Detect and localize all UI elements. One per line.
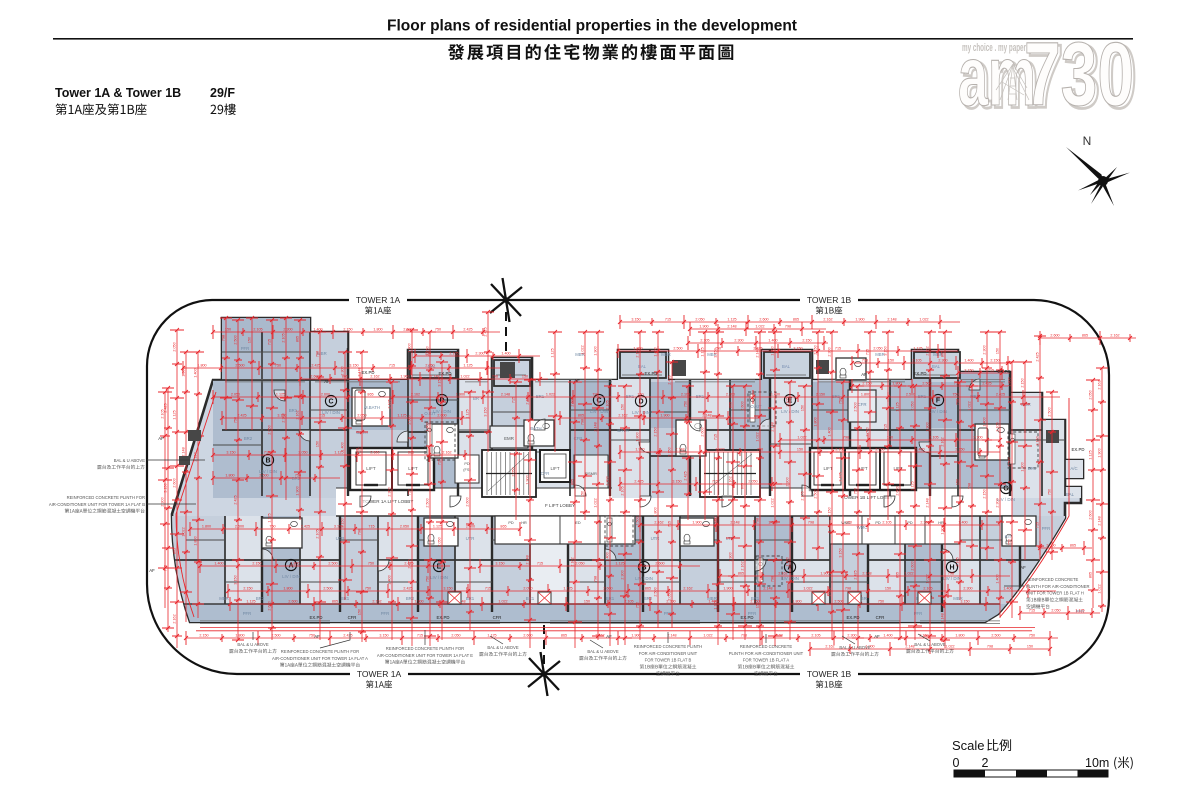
svg-text:2.148: 2.148 — [526, 555, 530, 564]
svg-text:BR1: BR1 — [918, 394, 927, 399]
svg-text:2.050: 2.050 — [866, 427, 870, 436]
svg-text:798: 798 — [987, 645, 993, 649]
svg-text:750: 750 — [954, 382, 960, 386]
svg-text:1.400: 1.400 — [313, 328, 322, 332]
svg-text:2.425: 2.425 — [982, 382, 991, 386]
svg-text:2.105: 2.105 — [923, 587, 932, 591]
svg-text:750: 750 — [408, 489, 412, 495]
svg-text:2.500: 2.500 — [834, 600, 843, 604]
svg-text:3.150: 3.150 — [672, 480, 681, 484]
svg-text:2.500: 2.500 — [991, 634, 1000, 638]
svg-text:1.800: 1.800 — [955, 634, 964, 638]
svg-text:AF: AF — [874, 634, 880, 639]
svg-text:2.600: 2.600 — [701, 427, 705, 436]
svg-text:2.148: 2.148 — [501, 393, 510, 397]
svg-text:1.125: 1.125 — [173, 410, 177, 419]
svg-text:2.150: 2.150 — [199, 634, 208, 638]
svg-text:1.400: 1.400 — [771, 393, 780, 397]
svg-text:1.800: 1.800 — [1021, 462, 1025, 471]
svg-text:2.050: 2.050 — [523, 587, 532, 591]
svg-text:730: 730 — [1024, 25, 1134, 125]
svg-text:1.800: 1.800 — [197, 364, 206, 368]
svg-text:AIR-CONDITIONER UNIT FOR TOWER: AIR-CONDITIONER UNIT FOR TOWER 1A FLAT A — [272, 656, 368, 661]
svg-text:2.300: 2.300 — [341, 366, 345, 375]
svg-text:PD: PD — [907, 521, 913, 525]
svg-text:2.162: 2.162 — [741, 561, 745, 570]
svg-text:798: 798 — [757, 448, 763, 452]
svg-text:AF: AF — [314, 634, 320, 639]
svg-text:1.400: 1.400 — [1003, 587, 1012, 591]
svg-text:715: 715 — [712, 480, 718, 484]
svg-text:EX.PD: EX.PD — [437, 615, 450, 620]
svg-text:2.150: 2.150 — [426, 346, 430, 355]
svg-text:798: 798 — [956, 399, 960, 405]
svg-text:3.150: 3.150 — [438, 377, 442, 386]
svg-text:2.300: 2.300 — [938, 359, 947, 363]
svg-text:REINFORCED CONCRETE PLINTH FOR: REINFORCED CONCRETE PLINTH FOR — [281, 649, 359, 654]
svg-text:150: 150 — [637, 393, 643, 397]
svg-text:2.050: 2.050 — [668, 591, 672, 600]
svg-text:1.900: 1.900 — [526, 475, 530, 484]
svg-text:2.600: 2.600 — [321, 393, 330, 397]
svg-text:715: 715 — [668, 521, 672, 527]
svg-text:2.425: 2.425 — [996, 393, 1005, 397]
svg-text:715: 715 — [988, 369, 994, 373]
svg-text:150: 150 — [887, 436, 893, 440]
svg-text:BR1: BR1 — [696, 394, 705, 399]
svg-text:2.150: 2.150 — [828, 507, 832, 516]
svg-text:1.900: 1.900 — [594, 346, 598, 355]
svg-text:2.425: 2.425 — [1036, 352, 1040, 361]
svg-text:1.800: 1.800 — [1008, 377, 1012, 386]
svg-text:865: 865 — [500, 525, 506, 529]
svg-text:865: 865 — [793, 318, 799, 322]
svg-text:1.125: 1.125 — [246, 600, 255, 604]
svg-text:2.148: 2.148 — [887, 318, 896, 322]
svg-text:1.125: 1.125 — [911, 481, 915, 490]
svg-text:150: 150 — [358, 609, 362, 615]
svg-text:3.150: 3.150 — [884, 346, 888, 355]
svg-text:1.900: 1.900 — [635, 448, 644, 452]
svg-text:715: 715 — [714, 434, 718, 440]
svg-text:PLINTH FOR AIR-CONDITIONER UNI: PLINTH FOR AIR-CONDITIONER UNIT — [729, 651, 804, 656]
svg-text:1.900: 1.900 — [855, 318, 864, 322]
svg-text:2.150: 2.150 — [816, 393, 825, 397]
svg-text:3.150: 3.150 — [443, 587, 452, 591]
svg-text:2.600: 2.600 — [1089, 510, 1093, 519]
svg-text:LIV / DIN: LIV / DIN — [929, 409, 947, 414]
svg-text:1.125: 1.125 — [397, 414, 406, 418]
svg-text:EX.PD: EX.PD — [439, 371, 452, 376]
svg-text:2.150: 2.150 — [955, 448, 964, 452]
svg-text:2.148: 2.148 — [1098, 516, 1102, 525]
svg-text:798: 798 — [316, 351, 320, 357]
svg-text:1.800: 1.800 — [792, 600, 801, 604]
svg-text:2.148: 2.148 — [756, 348, 760, 357]
svg-text:798: 798 — [808, 521, 814, 525]
svg-text:1.022: 1.022 — [594, 498, 598, 507]
svg-text:RSMR: RSMR — [585, 471, 597, 476]
svg-text:1.400: 1.400 — [214, 562, 223, 566]
svg-text:2.300: 2.300 — [847, 634, 856, 638]
svg-text:MBR: MBR — [661, 352, 671, 357]
svg-text:798: 798 — [845, 587, 851, 591]
svg-text:2.162: 2.162 — [595, 634, 604, 638]
svg-text:HR: HR — [521, 521, 527, 525]
svg-text:2.148: 2.148 — [771, 422, 775, 431]
svg-text:1.022: 1.022 — [904, 572, 913, 576]
svg-text:KIT: KIT — [1005, 534, 1012, 539]
svg-text:2.600: 2.600 — [310, 375, 319, 379]
svg-text:2.300: 2.300 — [875, 448, 884, 452]
svg-text:2.425: 2.425 — [343, 634, 352, 638]
svg-text:FOR AIR-CONDITIONER UNIT: FOR AIR-CONDITIONER UNIT — [639, 651, 698, 656]
svg-text:CFR: CFR — [348, 615, 357, 620]
svg-text:2.300: 2.300 — [388, 487, 392, 496]
svg-text:715: 715 — [389, 364, 395, 368]
svg-text:2.162: 2.162 — [1110, 334, 1119, 338]
svg-text:2.050: 2.050 — [298, 451, 307, 455]
svg-text:750: 750 — [426, 576, 430, 582]
svg-text:1.125: 1.125 — [701, 347, 705, 356]
svg-text:715: 715 — [319, 414, 325, 418]
svg-text:AF: AF — [606, 634, 612, 639]
svg-text:1.900: 1.900 — [400, 375, 409, 379]
svg-text:G: G — [1003, 486, 1009, 493]
svg-text:1.900: 1.900 — [296, 486, 300, 495]
svg-text:2.105: 2.105 — [316, 529, 320, 538]
svg-text:1.800: 1.800 — [408, 343, 412, 352]
svg-text:CFR: CFR — [541, 471, 550, 476]
svg-text:BAL & U ABOVE: BAL & U ABOVE — [914, 642, 945, 647]
svg-text:2.300: 2.300 — [920, 521, 929, 525]
svg-text:my choice . my paper: my choice . my paper — [962, 42, 1026, 54]
svg-text:2.425: 2.425 — [164, 403, 168, 412]
svg-text:150: 150 — [522, 375, 528, 379]
svg-text:2.150: 2.150 — [654, 427, 658, 436]
svg-text:150: 150 — [846, 521, 852, 525]
svg-text:LIV / DIN: LIV / DIN — [632, 410, 650, 415]
svg-text:2.105: 2.105 — [786, 397, 790, 406]
svg-text:AF: AF — [158, 436, 164, 441]
svg-text:798: 798 — [594, 576, 598, 582]
svg-text:1.022: 1.022 — [703, 634, 712, 638]
svg-text:BR1: BR1 — [1028, 466, 1037, 471]
svg-text:1.125: 1.125 — [276, 393, 285, 397]
svg-text:2.500: 2.500 — [259, 474, 268, 478]
svg-text:F: F — [936, 398, 941, 405]
svg-text:865: 865 — [741, 483, 745, 489]
svg-text:2.148: 2.148 — [594, 422, 598, 431]
svg-text:2.600: 2.600 — [1050, 334, 1059, 338]
svg-text:798: 798 — [785, 325, 791, 329]
svg-text:1.022: 1.022 — [498, 600, 507, 604]
svg-text:1.800: 1.800 — [636, 432, 640, 441]
svg-text:2.500: 2.500 — [235, 525, 244, 529]
svg-text:2.148: 2.148 — [727, 325, 736, 329]
svg-text:150: 150 — [885, 587, 891, 591]
svg-text:2.105: 2.105 — [700, 339, 709, 343]
svg-text:865: 865 — [408, 451, 414, 455]
svg-text:3.150: 3.150 — [349, 364, 358, 368]
svg-text:150: 150 — [777, 634, 783, 638]
svg-text:2.050: 2.050 — [873, 347, 882, 351]
svg-text:BR1: BR1 — [626, 394, 635, 399]
svg-text:2.105: 2.105 — [801, 491, 805, 500]
svg-text:1.800: 1.800 — [202, 525, 211, 529]
svg-text:750: 750 — [1029, 634, 1035, 638]
svg-text:715: 715 — [368, 525, 374, 529]
svg-text:1.400: 1.400 — [964, 359, 973, 363]
svg-text:1.022: 1.022 — [182, 527, 186, 536]
svg-text:1.125: 1.125 — [615, 562, 624, 566]
svg-text:Floor plans of residential pro: Floor plans of residential properties in… — [387, 18, 797, 35]
svg-text:865: 865 — [896, 572, 900, 578]
svg-text:2.105: 2.105 — [929, 436, 938, 440]
svg-text:865: 865 — [578, 414, 584, 418]
svg-text:2.500: 2.500 — [854, 402, 858, 411]
svg-text:750: 750 — [234, 417, 238, 423]
svg-text:EX.PD: EX.PD — [645, 371, 658, 376]
svg-text:865: 865 — [645, 587, 651, 591]
svg-text:2.050: 2.050 — [173, 342, 177, 351]
svg-text:2.425: 2.425 — [634, 480, 643, 484]
svg-text:BAL & U ABOVE: BAL & U ABOVE — [114, 458, 145, 463]
svg-text:2.050: 2.050 — [357, 414, 366, 418]
svg-text:865: 865 — [729, 402, 733, 408]
svg-text:REINFORCED CONCRETE: REINFORCED CONCRETE — [1026, 577, 1079, 582]
svg-text:M.BATH: M.BATH — [364, 405, 380, 410]
svg-text:2.150: 2.150 — [636, 348, 640, 357]
svg-text:BAL & U ABOVE: BAL & U ABOVE — [487, 645, 518, 650]
svg-text:715: 715 — [485, 587, 491, 591]
svg-text:2.425: 2.425 — [484, 327, 488, 336]
svg-text:2.150: 2.150 — [814, 345, 818, 354]
svg-text:798: 798 — [492, 375, 498, 379]
svg-text:2.500: 2.500 — [234, 335, 238, 344]
svg-text:865: 865 — [571, 479, 575, 485]
svg-text:2.300: 2.300 — [963, 587, 972, 591]
svg-text:2.600: 2.600 — [466, 497, 470, 506]
svg-text:2.050: 2.050 — [425, 364, 434, 368]
svg-text:PFR: PFR — [1042, 526, 1051, 531]
svg-text:TOWER 1A: TOWER 1A — [356, 295, 401, 305]
svg-text:1.400: 1.400 — [194, 368, 198, 377]
svg-text:1.022: 1.022 — [460, 375, 469, 379]
svg-text:1.022: 1.022 — [1098, 584, 1102, 593]
svg-text:2.148: 2.148 — [730, 521, 739, 525]
svg-text:2.150: 2.150 — [802, 339, 811, 343]
svg-text:LIFT: LIFT — [366, 466, 376, 471]
svg-text:2.162: 2.162 — [618, 414, 627, 418]
svg-text:2.105: 2.105 — [835, 448, 844, 452]
svg-text:2.105: 2.105 — [882, 521, 891, 525]
svg-text:PD: PD — [875, 521, 881, 525]
svg-text:3.150: 3.150 — [631, 318, 640, 322]
svg-text:2.425: 2.425 — [301, 525, 310, 529]
svg-text:2.500: 2.500 — [1008, 457, 1012, 466]
svg-text:3.150: 3.150 — [714, 348, 718, 357]
svg-text:1.022: 1.022 — [546, 393, 555, 397]
svg-text:BAL: BAL — [932, 364, 941, 369]
svg-text:2.600: 2.600 — [1046, 544, 1055, 548]
svg-text:2.150: 2.150 — [343, 328, 352, 332]
svg-text:865: 865 — [738, 572, 744, 576]
svg-text:1.022: 1.022 — [919, 318, 928, 322]
svg-text:1.022: 1.022 — [768, 521, 777, 525]
svg-text:1.400: 1.400 — [883, 634, 892, 638]
svg-text:PD: PD — [508, 521, 514, 525]
svg-text:F LIFT LOBBY: F LIFT LOBBY — [545, 503, 575, 508]
svg-text:ED: ED — [575, 521, 581, 525]
svg-text:2.050: 2.050 — [1051, 609, 1060, 613]
svg-text:2.050: 2.050 — [400, 525, 409, 529]
svg-text:715: 715 — [665, 318, 671, 322]
svg-text:2.600: 2.600 — [571, 397, 575, 406]
svg-text:EX.PD: EX.PD — [741, 615, 754, 620]
svg-text:3.150: 3.150 — [1036, 436, 1040, 445]
svg-text:715: 715 — [417, 634, 423, 638]
svg-text:2.600: 2.600 — [437, 414, 446, 418]
svg-text:D: D — [638, 399, 643, 406]
svg-text:865: 865 — [1089, 572, 1093, 578]
svg-text:BATH: BATH — [530, 426, 541, 431]
svg-text:1.022: 1.022 — [358, 447, 362, 456]
svg-text:750: 750 — [878, 600, 884, 604]
svg-text:150: 150 — [797, 448, 803, 452]
svg-text:798: 798 — [741, 634, 747, 638]
svg-text:2.500: 2.500 — [426, 498, 430, 507]
svg-text:2.105: 2.105 — [282, 333, 286, 342]
svg-text:1.400: 1.400 — [786, 557, 790, 566]
svg-text:2.500: 2.500 — [271, 634, 280, 638]
svg-text:1.125: 1.125 — [1089, 450, 1093, 459]
svg-text:2.162: 2.162 — [296, 410, 300, 419]
svg-text:798: 798 — [843, 436, 849, 440]
svg-text:1.800: 1.800 — [235, 634, 244, 638]
svg-text:2.162: 2.162 — [926, 346, 930, 355]
svg-text:1.800: 1.800 — [373, 328, 382, 332]
svg-text:1.900: 1.900 — [729, 552, 733, 561]
svg-text:865: 865 — [173, 548, 177, 554]
svg-text:1.400: 1.400 — [654, 347, 658, 356]
svg-text:1.400: 1.400 — [341, 442, 345, 451]
svg-text:1.900: 1.900 — [1098, 448, 1102, 457]
svg-text:2.148: 2.148 — [941, 613, 945, 622]
svg-text:750: 750 — [1008, 539, 1012, 545]
svg-text:1.800: 1.800 — [861, 393, 870, 397]
svg-text:2.300: 2.300 — [734, 339, 743, 343]
svg-text:2.150: 2.150 — [983, 489, 987, 498]
svg-text:2.600: 2.600 — [288, 600, 297, 604]
svg-text:2.162: 2.162 — [173, 614, 177, 623]
svg-text:2.425: 2.425 — [408, 559, 412, 568]
svg-text:1.900: 1.900 — [631, 634, 640, 638]
svg-text:1.400: 1.400 — [958, 521, 967, 525]
svg-text:2.500: 2.500 — [1048, 407, 1052, 416]
svg-text:LIFT: LIFT — [823, 466, 832, 471]
svg-text:LIFT: LIFT — [550, 466, 559, 471]
svg-text:BR2: BR2 — [644, 596, 653, 601]
svg-text:865: 865 — [941, 351, 945, 357]
svg-text:2.425: 2.425 — [839, 472, 843, 481]
svg-text:750: 750 — [368, 562, 374, 566]
svg-text:865: 865 — [367, 393, 373, 397]
svg-text:2.425: 2.425 — [684, 471, 688, 480]
svg-text:1.400: 1.400 — [606, 552, 610, 561]
svg-text:1.900: 1.900 — [941, 525, 945, 534]
svg-text:2.500: 2.500 — [922, 382, 931, 386]
svg-text:E: E — [437, 564, 442, 571]
svg-text:MBR: MBR — [219, 596, 229, 601]
svg-text:29/F: 29/F — [210, 86, 235, 100]
svg-text:750: 750 — [295, 474, 301, 478]
svg-text:TOWER 1B: TOWER 1B — [807, 669, 852, 679]
svg-text:2.600: 2.600 — [911, 561, 915, 570]
svg-text:715: 715 — [1036, 522, 1040, 528]
svg-text:PD: PD — [464, 462, 470, 466]
svg-text:2.162: 2.162 — [442, 451, 451, 455]
svg-text:2.148: 2.148 — [182, 447, 186, 456]
svg-text:798: 798 — [358, 529, 362, 535]
svg-text:PFR: PFR — [243, 611, 252, 616]
svg-text:2.425: 2.425 — [463, 328, 472, 332]
svg-text:LIV / DIN: LIV / DIN — [430, 575, 448, 580]
svg-text:2.162: 2.162 — [1098, 380, 1102, 389]
svg-text:1.125: 1.125 — [727, 318, 736, 322]
svg-text:2.050: 2.050 — [695, 318, 704, 322]
svg-text:1.022: 1.022 — [926, 574, 930, 583]
svg-text:1.022: 1.022 — [755, 325, 764, 329]
svg-text:715: 715 — [866, 349, 870, 355]
svg-text:750: 750 — [952, 393, 958, 397]
svg-text:2.162: 2.162 — [823, 318, 832, 322]
svg-text:AIR-CONDITIONER UNIT FOR TOWER: AIR-CONDITIONER UNIT FOR TOWER 1A FLAT B — [49, 502, 145, 507]
svg-text:715: 715 — [1029, 609, 1035, 613]
svg-text:1.125: 1.125 — [268, 513, 272, 522]
svg-text:2.150: 2.150 — [243, 587, 252, 591]
svg-text:2.162: 2.162 — [778, 572, 787, 576]
svg-text:2.162: 2.162 — [941, 437, 945, 446]
svg-text:798: 798 — [581, 419, 585, 425]
svg-text:750: 750 — [854, 488, 858, 494]
svg-text:Tower 1A & Tower 1B: Tower 1A & Tower 1B — [55, 86, 181, 100]
svg-text:150: 150 — [248, 337, 252, 343]
svg-text:2.050: 2.050 — [748, 480, 757, 484]
svg-text:1.022: 1.022 — [756, 432, 760, 441]
svg-text:EX.PD: EX.PD — [362, 370, 375, 375]
svg-text:2.300: 2.300 — [283, 328, 292, 332]
svg-text:715: 715 — [512, 397, 516, 403]
svg-text:715: 715 — [884, 424, 888, 430]
svg-text:2.162: 2.162 — [372, 600, 381, 604]
svg-text:2.050: 2.050 — [911, 401, 915, 410]
svg-text:1.022: 1.022 — [581, 345, 585, 354]
svg-text:750: 750 — [684, 401, 688, 407]
svg-text:1.800: 1.800 — [225, 474, 234, 478]
svg-text:2.425: 2.425 — [668, 375, 672, 384]
svg-text:2.500: 2.500 — [814, 489, 818, 498]
svg-text:2.050: 2.050 — [512, 467, 516, 476]
svg-text:2.600: 2.600 — [466, 525, 475, 529]
svg-text:CFR: CFR — [876, 615, 885, 620]
svg-text:150: 150 — [996, 348, 1000, 354]
svg-text:2.105: 2.105 — [811, 634, 820, 638]
svg-text:AF: AF — [574, 378, 580, 383]
svg-text:1.800: 1.800 — [892, 382, 901, 386]
svg-text:715: 715 — [835, 347, 841, 351]
svg-text:PFR: PFR — [241, 346, 250, 351]
